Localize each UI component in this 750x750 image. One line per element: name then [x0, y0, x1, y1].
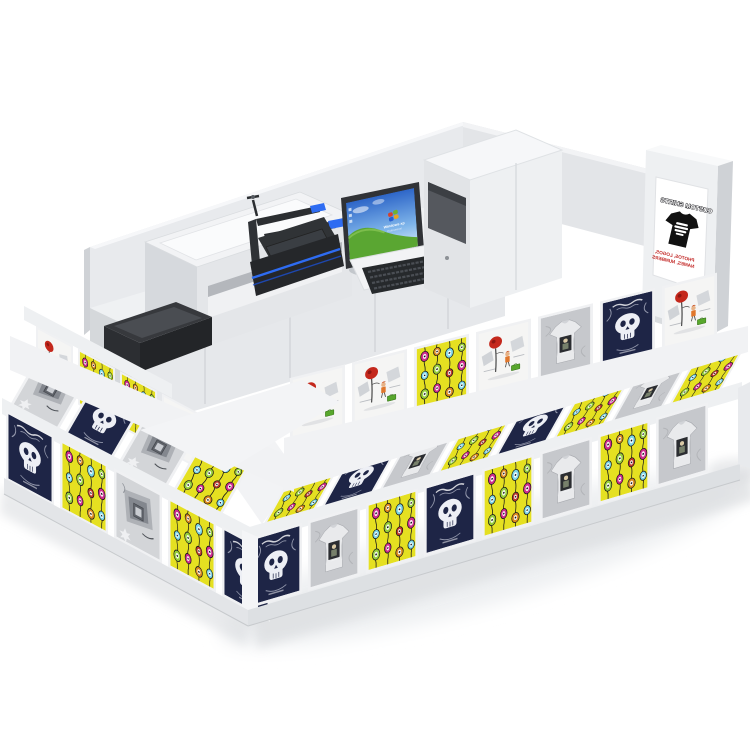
press-knob — [251, 195, 255, 199]
corner-post — [242, 530, 258, 616]
hutch-door-knob — [445, 256, 449, 260]
kiosk-render: CUSTOM SHIRTS PHOTOS, LOGOS, NAMES, NUMB… — [0, 0, 750, 750]
kiosk-scene: CUSTOM SHIRTS PHOTOS, LOGOS, NAMES, NUMB… — [0, 0, 750, 750]
storage-hutch — [424, 130, 562, 308]
